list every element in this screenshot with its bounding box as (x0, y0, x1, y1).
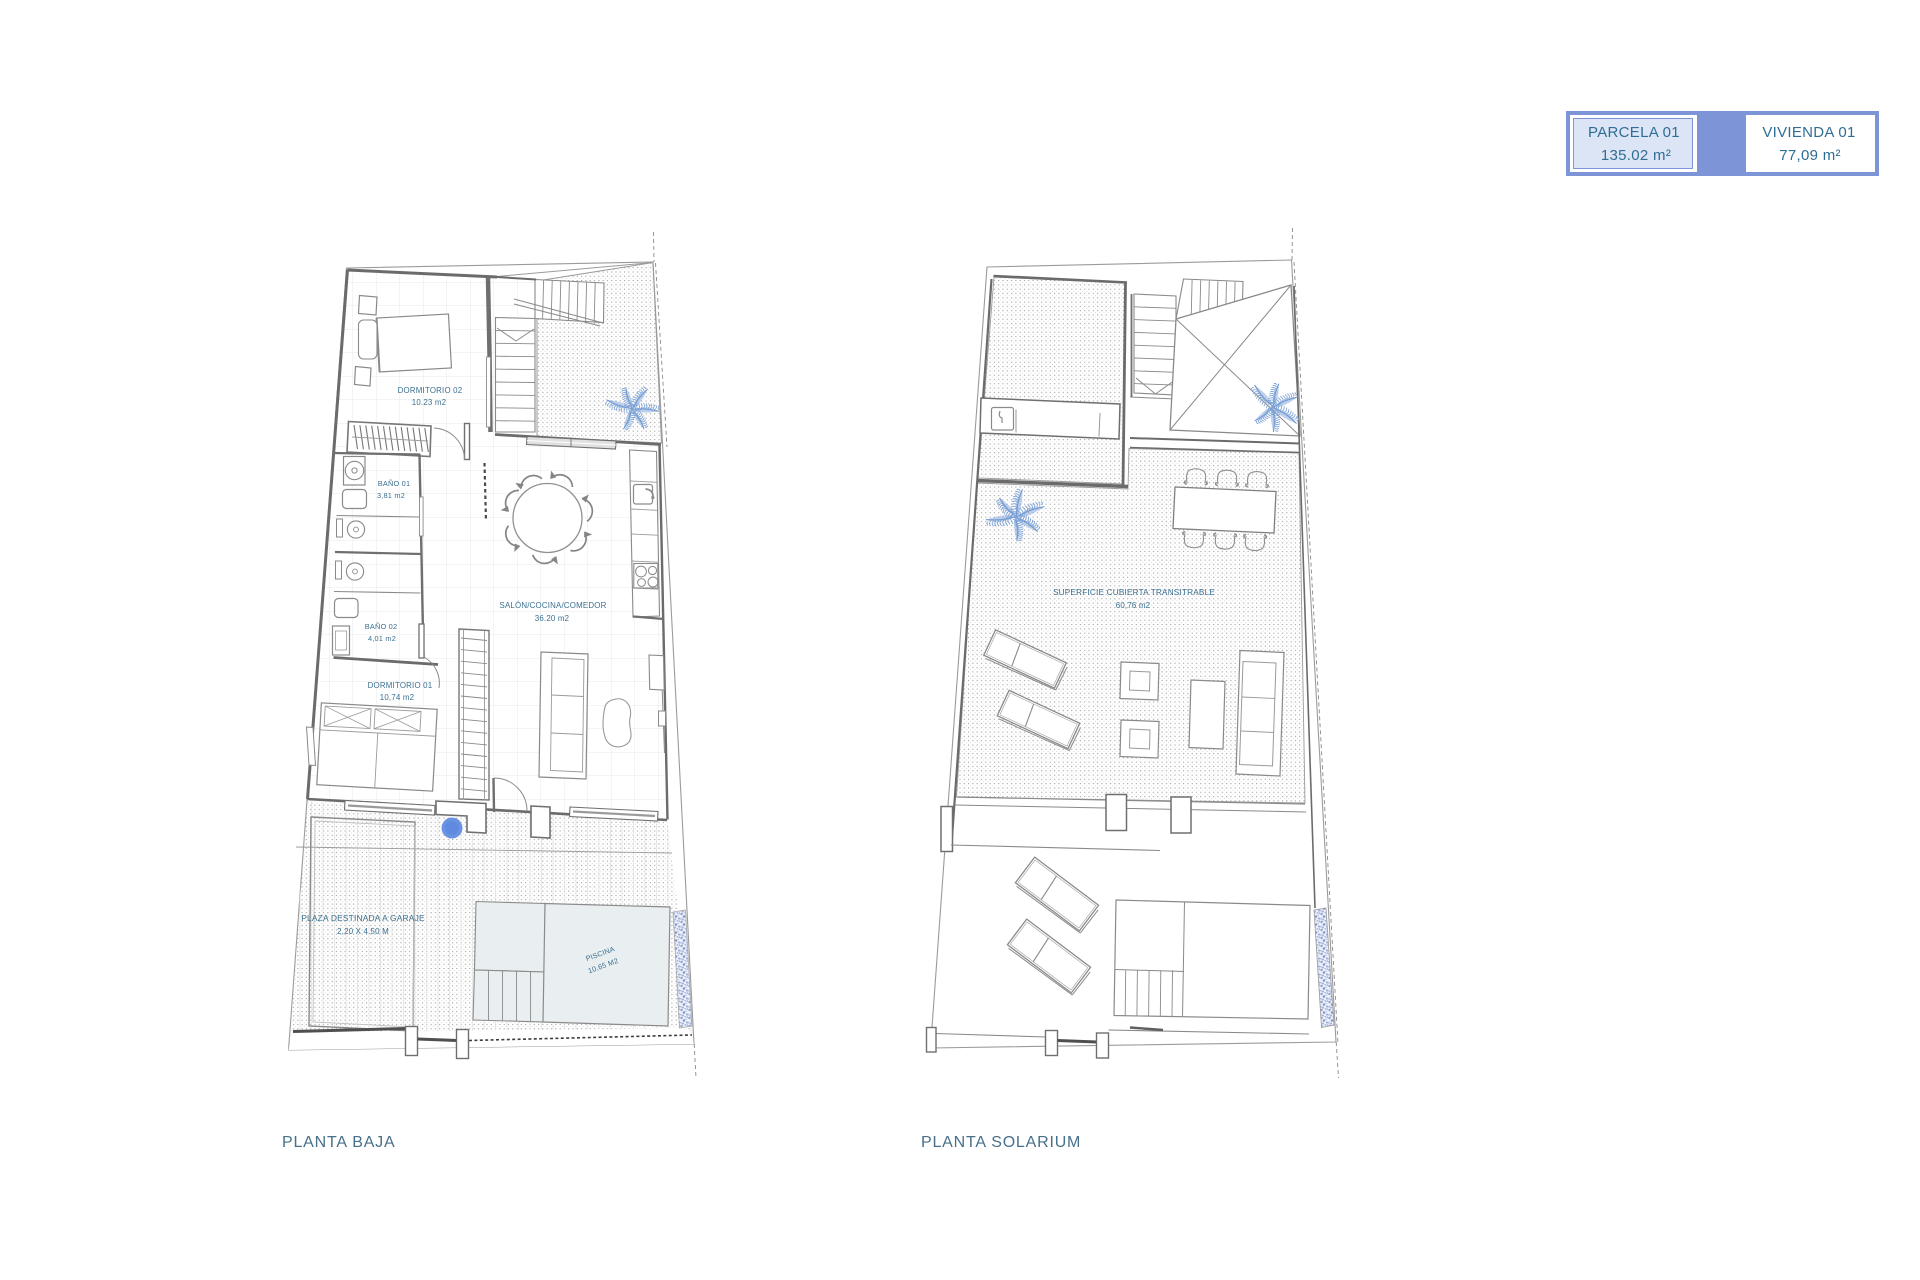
svg-text:4,01 m2: 4,01 m2 (368, 634, 396, 643)
svg-text:PLAZA DESTINADA A GARAJE: PLAZA DESTINADA A GARAJE (301, 913, 425, 923)
svg-text:BAÑO 01: BAÑO 01 (378, 479, 411, 488)
svg-text:2,20 X 4.50 M: 2,20 X 4.50 M (337, 927, 389, 936)
svg-text:PLANTA SOLARIUM: PLANTA SOLARIUM (921, 1134, 1081, 1151)
svg-text:135.02 m²: 135.02 m² (1601, 147, 1671, 164)
svg-text:SALÓN/COCINA/COMEDOR: SALÓN/COCINA/COMEDOR (499, 601, 606, 610)
svg-text:10.23 m2: 10.23 m2 (412, 398, 447, 407)
svg-text:3,81 m2: 3,81 m2 (377, 491, 405, 500)
svg-text:PARCELA 01: PARCELA 01 (1588, 124, 1680, 141)
svg-text:BAÑO 02: BAÑO 02 (365, 622, 398, 631)
svg-text:SUPERFICIE CUBIERTA TRANSITRAB: SUPERFICIE CUBIERTA TRANSITRABLE (1053, 588, 1215, 597)
svg-text:VIVIENDA 01: VIVIENDA 01 (1762, 124, 1855, 141)
svg-text:PLANTA BAJA: PLANTA BAJA (282, 1134, 395, 1151)
svg-text:DORMITORIO 01: DORMITORIO 01 (368, 681, 433, 690)
svg-text:36.20 m2: 36.20 m2 (535, 614, 570, 623)
svg-text:77,09 m²: 77,09 m² (1779, 147, 1841, 164)
svg-text:60,76 m2: 60,76 m2 (1116, 601, 1151, 610)
svg-text:DORMITORIO 02: DORMITORIO 02 (398, 386, 463, 395)
svg-text:10,74 m2: 10,74 m2 (380, 693, 415, 702)
